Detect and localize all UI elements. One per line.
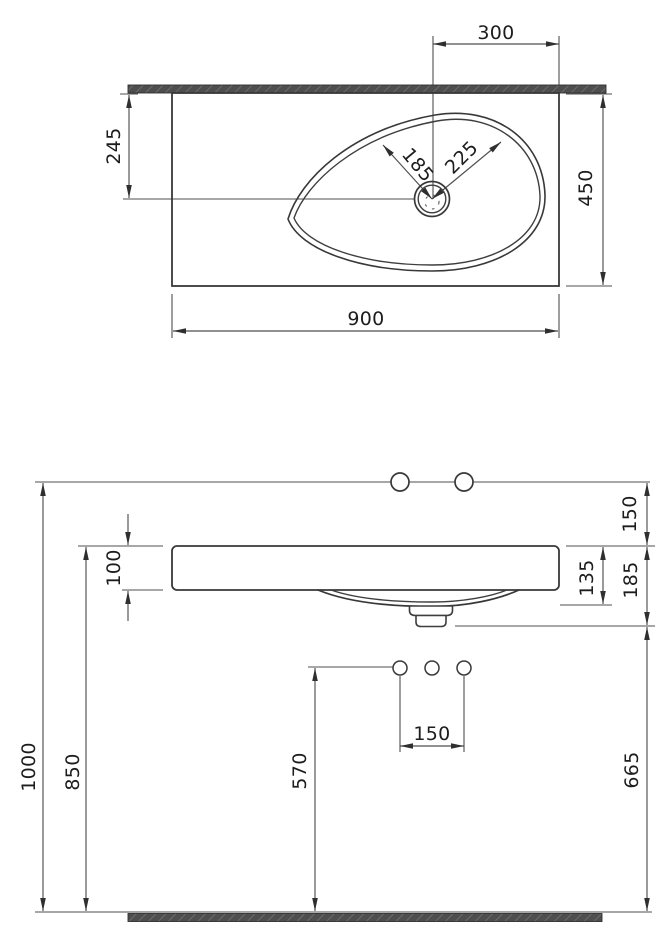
washbasin-slab xyxy=(172,546,559,590)
plan-view: 300 245 450 900 185 xyxy=(103,22,612,338)
wall-hatch-bar xyxy=(128,85,606,93)
dim-label-plan-basin-left: 185 xyxy=(397,144,438,187)
dim-label-front-hole-spacing: 150 xyxy=(413,723,450,745)
dim-label-front-tapline-height: 1000 xyxy=(18,742,40,792)
drawing-canvas: 300 245 450 900 185 xyxy=(0,0,672,950)
dim-185-diagonal-group: 185 xyxy=(383,144,438,199)
dim-1000-group: 1000 xyxy=(18,483,43,911)
supply-hole xyxy=(425,661,439,675)
drain-center-mark xyxy=(425,195,439,209)
dim-label-front-rim-height: 850 xyxy=(62,753,84,790)
dim-label-front-supply-height: 570 xyxy=(289,752,311,789)
dim-245-group: 245 xyxy=(103,94,414,199)
dim-135-group: 135 xyxy=(560,547,612,605)
dim-label-plan-drain-offset-right: 300 xyxy=(477,22,514,44)
drain-trap-body xyxy=(416,616,446,627)
dim-label-front-outlet-height: 665 xyxy=(621,751,643,788)
dim-150-lower-group: 150 xyxy=(400,676,464,752)
dim-label-plan-drain-offset-wall: 245 xyxy=(103,127,125,164)
supply-hole xyxy=(457,661,471,675)
dim-label-plan-width: 900 xyxy=(347,308,384,330)
technical-drawing-page: 300 245 450 900 185 xyxy=(0,0,672,950)
faucet-hole xyxy=(391,473,409,491)
faucet-hole xyxy=(455,473,473,491)
supply-hole xyxy=(393,661,407,675)
dim-850-group: 850 xyxy=(62,546,163,911)
dim-665-group: 665 xyxy=(621,627,647,911)
drain-trap-flange xyxy=(410,606,453,616)
dim-label-front-basin-depth: 135 xyxy=(576,559,598,596)
dim-label-plan-depth: 450 xyxy=(575,169,597,206)
dim-label-front-tapline-above-rim: 150 xyxy=(619,495,641,532)
front-view: 1000 850 100 570 150 xyxy=(18,473,655,922)
dim-900-group: 900 xyxy=(172,294,559,338)
basin-rim-inner xyxy=(294,119,540,265)
floor-hatch-bar xyxy=(128,914,602,922)
dim-450-group: 450 xyxy=(566,94,612,286)
dim-label-front-slab-thickness: 100 xyxy=(103,549,125,586)
bowl-profile-outer xyxy=(318,590,519,607)
dim-label-front-body-depth: 185 xyxy=(620,561,642,598)
dim-label-plan-basin-right: 225 xyxy=(441,137,483,179)
dim-150-top-group: 150 xyxy=(619,483,647,545)
dim-570-group: 570 xyxy=(289,667,393,911)
dim-100-group: 100 xyxy=(103,514,163,621)
